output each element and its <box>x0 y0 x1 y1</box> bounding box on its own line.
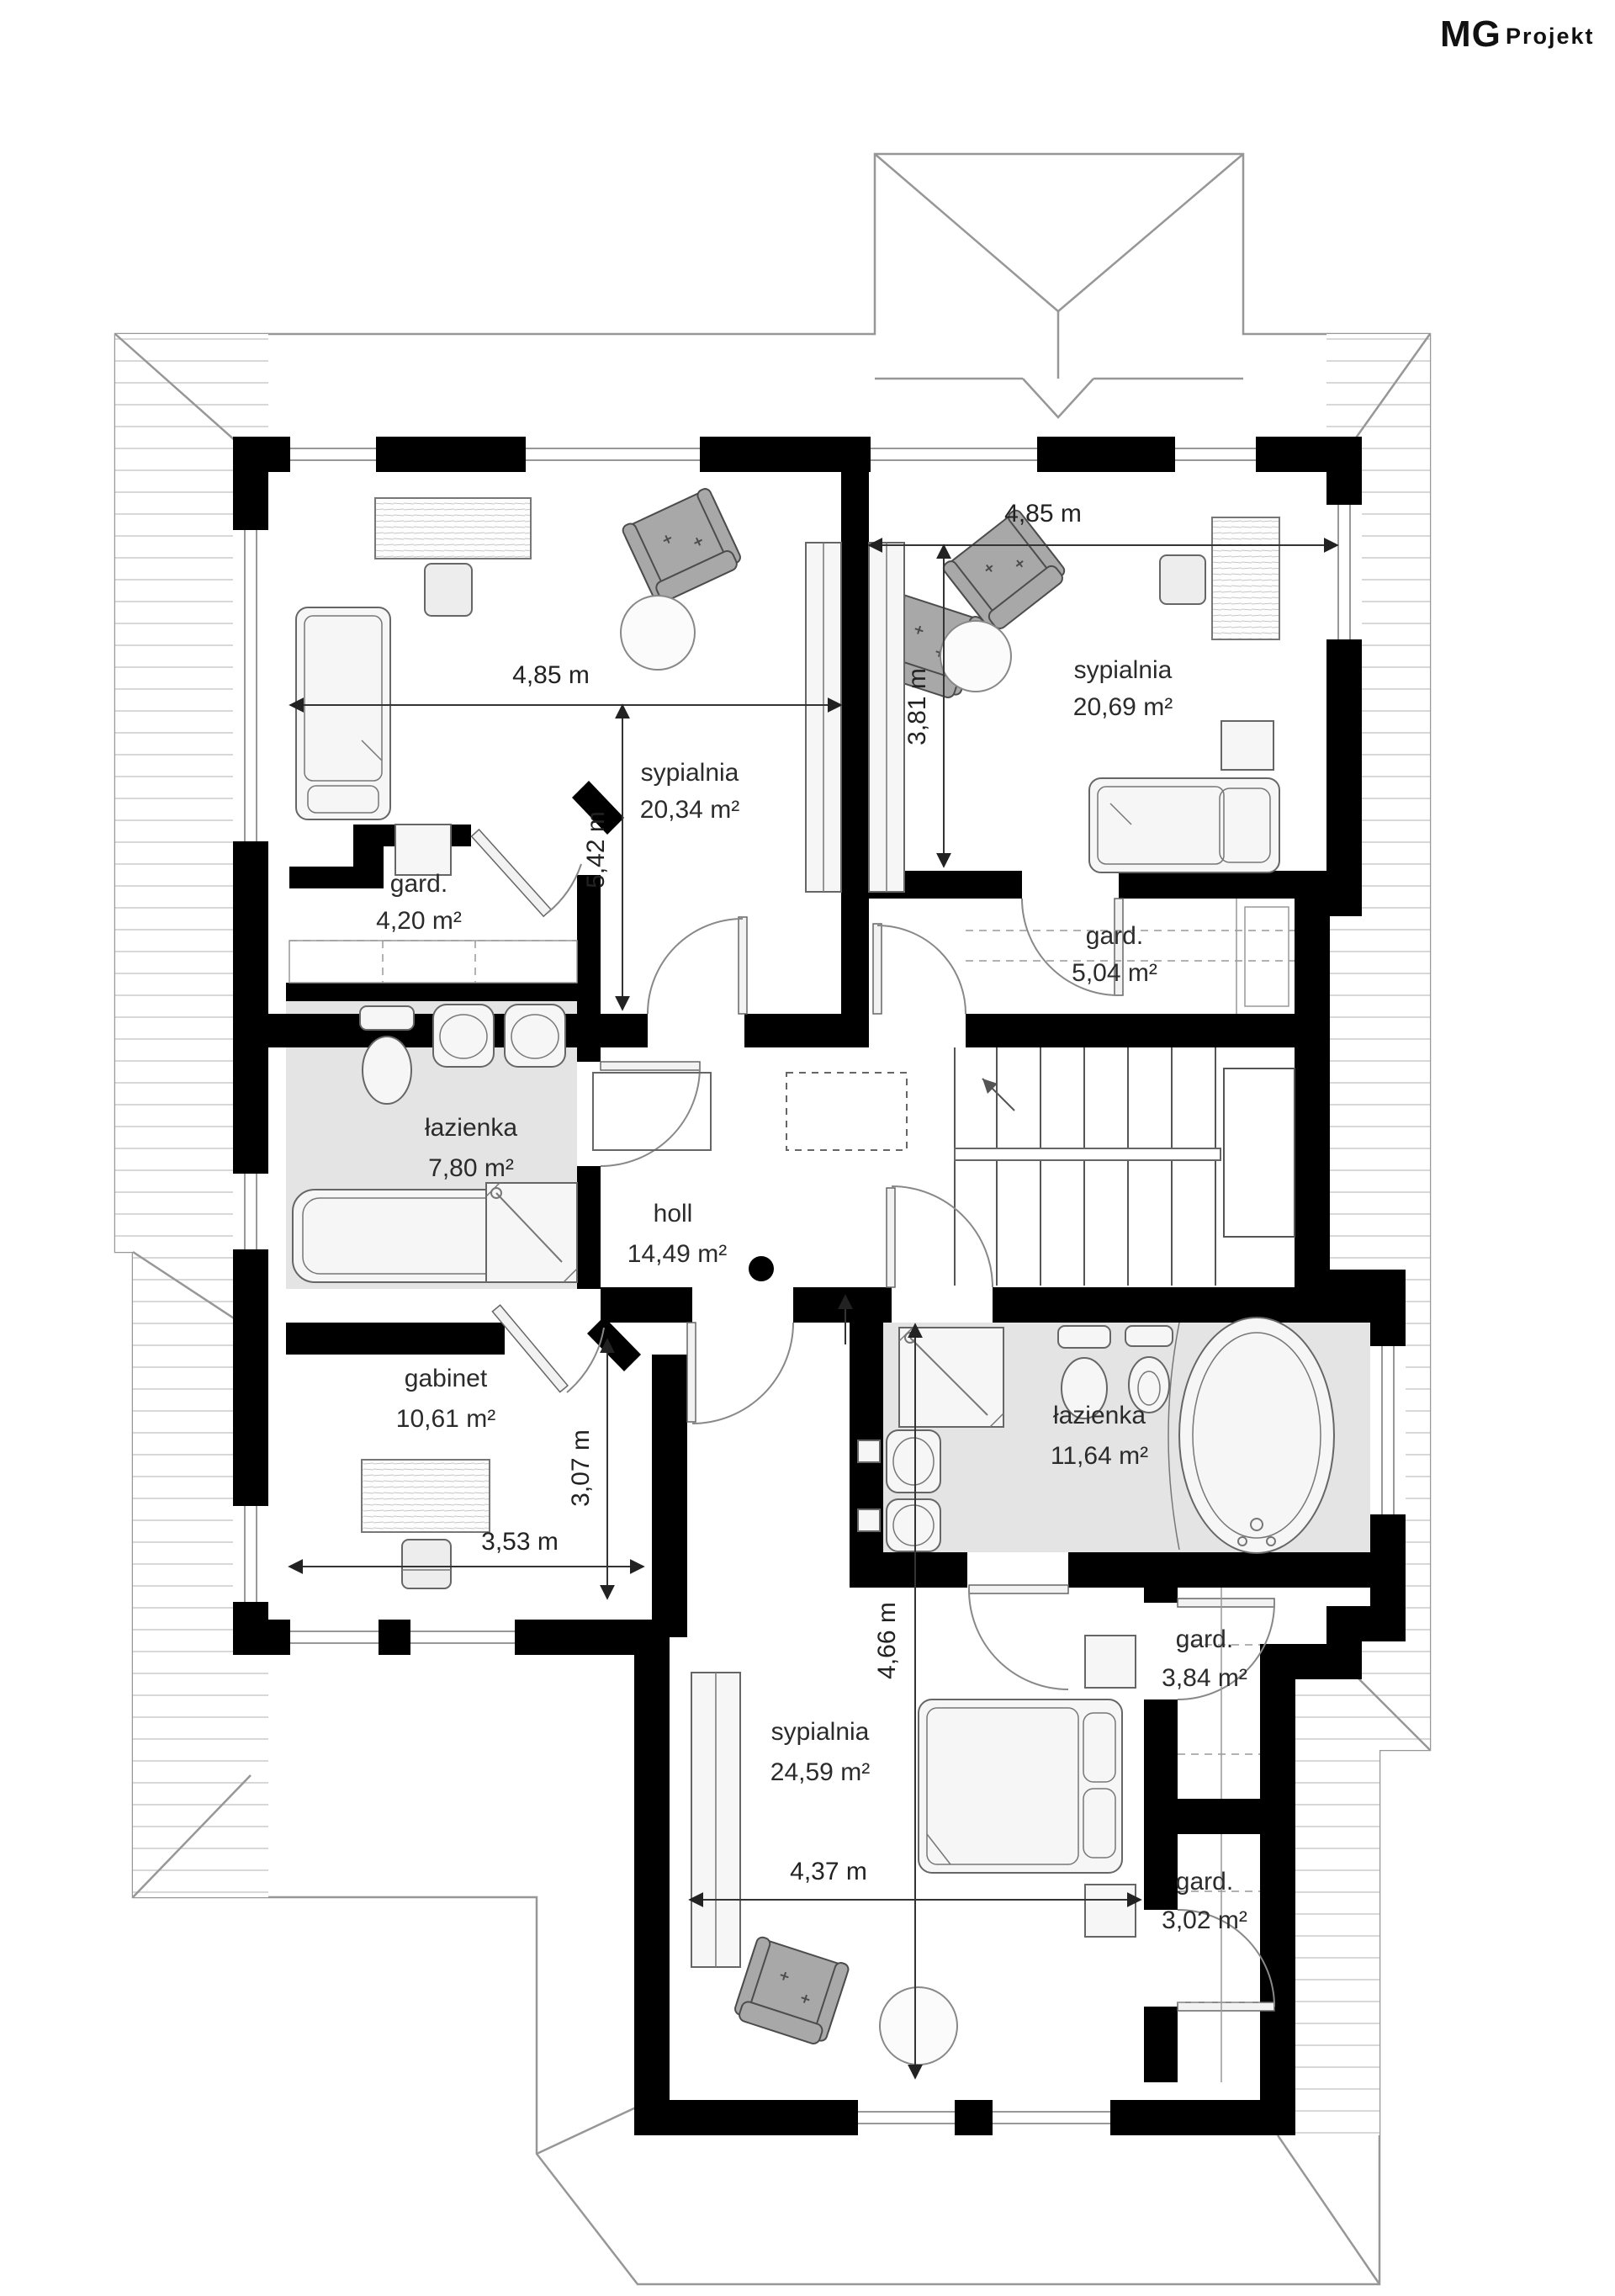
dimension-label: 4,66 m <box>873 1602 901 1679</box>
dimension-label: 3,07 m <box>567 1429 595 1507</box>
room-name: sypialnia <box>1074 656 1173 684</box>
room-name: gard. <box>390 870 447 898</box>
window-pillar <box>955 2100 993 2135</box>
room-name: gard. <box>1176 1625 1233 1653</box>
room-area: 11,64 m² <box>1051 1442 1148 1470</box>
round-rug <box>621 596 695 670</box>
window <box>290 1620 379 1655</box>
desk <box>375 498 531 559</box>
room-area: 7,80 m² <box>428 1154 514 1182</box>
window <box>1175 437 1256 472</box>
double-bed <box>919 1699 1122 1873</box>
wardrobe <box>691 1673 740 1967</box>
dimension-label: 4,85 m <box>1004 500 1082 528</box>
single-bed <box>296 607 390 819</box>
room-name: gard. <box>1086 922 1143 950</box>
window <box>233 1506 268 1602</box>
brand-logo: MG Projekt <box>1440 13 1595 55</box>
dimension-label: 4,37 m <box>790 1858 867 1885</box>
room-area: 20,69 m² <box>1073 693 1173 721</box>
logo-projekt-text: Projekt <box>1506 24 1595 49</box>
room-name: gard. <box>1176 1868 1233 1896</box>
window <box>526 437 700 472</box>
room-area: 3,84 m² <box>1162 1664 1247 1692</box>
room-name: łazienka <box>1053 1402 1146 1429</box>
room-name: holl <box>654 1200 693 1228</box>
dimension-label: 5,42 m <box>582 811 610 888</box>
sink <box>505 1005 565 1067</box>
nightstand <box>1085 1885 1136 1937</box>
dimension-label: 4,85 m <box>512 661 590 689</box>
window <box>871 437 1037 472</box>
desk <box>1212 517 1279 639</box>
room-area: 4,20 m² <box>376 907 462 935</box>
dimension-label: 3,53 m <box>481 1528 559 1556</box>
column-dot <box>749 1256 774 1281</box>
room-area: 3,02 m² <box>1162 1906 1247 1934</box>
sink <box>433 1005 494 1067</box>
dimension-label: 3,81 m <box>903 668 931 745</box>
window <box>1326 505 1362 639</box>
logo-mg-text: MG <box>1440 13 1501 55</box>
desk <box>362 1460 490 1532</box>
desk-chair <box>425 564 472 616</box>
room-area: 10,61 m² <box>396 1405 495 1433</box>
wardrobe <box>806 543 841 892</box>
window <box>290 437 376 472</box>
room-name: gabinet <box>405 1365 488 1392</box>
room-area: 20,34 m² <box>640 796 739 824</box>
bidet <box>1125 1326 1173 1413</box>
window <box>410 1620 515 1655</box>
round-rug <box>880 1987 957 2065</box>
window <box>233 1174 268 1249</box>
desk-chair <box>402 1540 451 1588</box>
room-name: sypialnia <box>641 759 739 787</box>
window-pillar <box>379 1620 410 1655</box>
window <box>993 2100 1110 2135</box>
window <box>1370 1346 1406 1514</box>
stairs-handrail <box>955 1148 1221 1160</box>
floor-plan-page: 4,85 m 4,85 m 5,42 m 3,81 m 3,07 m 3,53 … <box>0 0 1615 2296</box>
single-bed <box>1089 778 1279 872</box>
floor-plan-svg: 4,85 m 4,85 m 5,42 m 3,81 m 3,07 m 3,53 … <box>0 0 1615 2296</box>
toilet <box>360 1006 414 1104</box>
nightstand <box>1221 721 1273 770</box>
room-area: 24,59 m² <box>770 1758 870 1786</box>
room-area: 5,04 m² <box>1072 959 1157 987</box>
nightstand <box>1085 1636 1136 1688</box>
nightstand <box>395 825 451 875</box>
room-name: sypialnia <box>771 1718 870 1746</box>
window <box>233 530 268 841</box>
room-area: 14,49 m² <box>627 1240 727 1268</box>
shower <box>486 1183 577 1282</box>
window <box>858 2100 955 2135</box>
wardrobe <box>869 543 904 892</box>
desk-chair <box>1160 555 1205 604</box>
round-rug <box>940 621 1011 692</box>
room-name: łazienka <box>425 1114 517 1142</box>
